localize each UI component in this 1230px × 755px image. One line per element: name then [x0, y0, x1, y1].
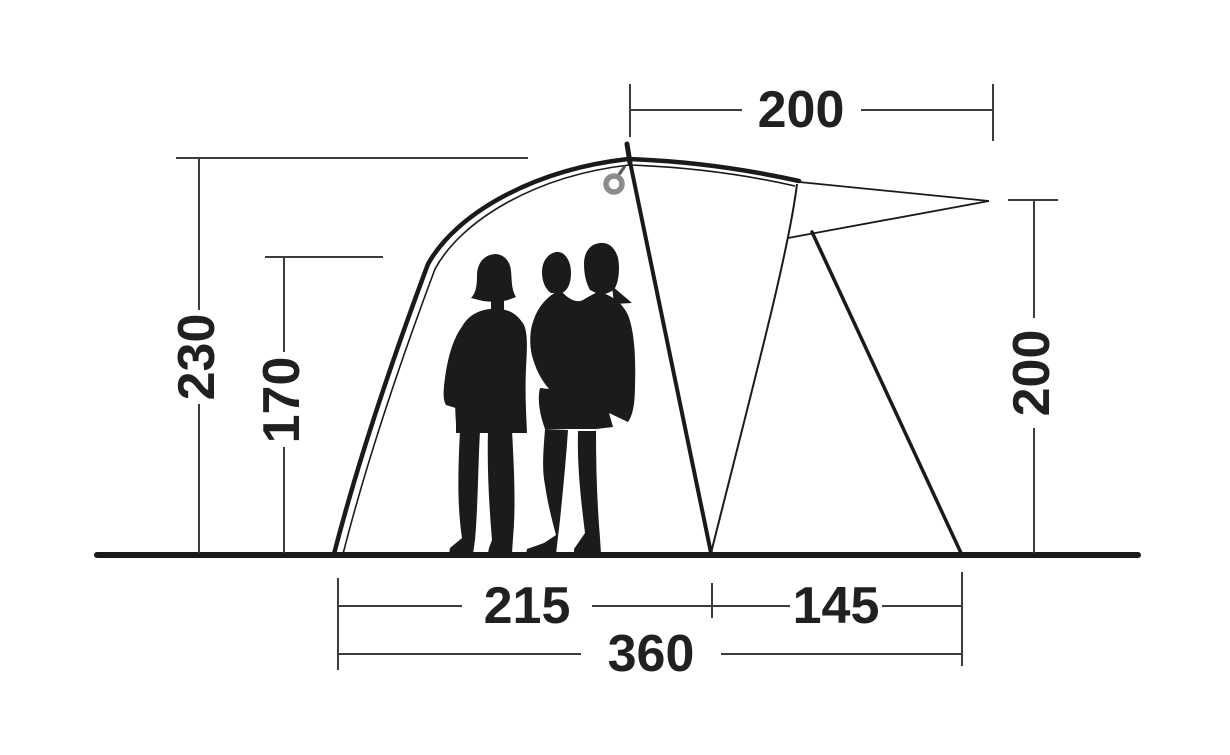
dimension-top-width: 200 — [630, 81, 993, 141]
dim-label-floor-porch: 145 — [793, 577, 880, 635]
dim-label-standing-height: 170 — [253, 357, 311, 444]
figure-man-and-child-body — [530, 290, 635, 429]
rear-wall — [711, 184, 797, 553]
dimension-floor: 215 145 360 — [338, 572, 962, 683]
dim-label-floor-front: 215 — [484, 577, 571, 635]
tent-dimension-diagram: 200 230 170 200 215 145 360 — [0, 0, 1230, 755]
dimension-canopy-height: 200 — [1003, 200, 1061, 553]
ring-cord — [618, 166, 625, 176]
dim-label-canopy-height: 200 — [1003, 330, 1061, 417]
figure-child-head — [542, 252, 571, 293]
canopy-lower-edge — [788, 201, 989, 238]
dim-label-left-height: 230 — [168, 314, 226, 401]
guy-ring-icon — [606, 176, 622, 192]
figure-woman-leg-right — [488, 430, 515, 553]
figure-woman-neck — [491, 295, 504, 311]
figure-man-leg-left — [526, 429, 568, 554]
tent-roof-outer — [628, 159, 799, 181]
canopy-upper-edge — [799, 182, 989, 201]
dimension-standing-height: 170 — [253, 257, 383, 553]
figure-man-leg-right — [574, 431, 601, 554]
dim-label-top-width: 200 — [758, 81, 845, 139]
figure-woman-torso — [455, 309, 527, 433]
guy-pole — [812, 232, 961, 553]
figure-woman-head — [471, 254, 516, 302]
family-silhouette — [444, 243, 636, 554]
figure-woman-leg-left — [449, 430, 480, 554]
dim-label-floor-total: 360 — [608, 625, 695, 683]
figure-man-head — [584, 243, 619, 294]
center-pole — [629, 157, 711, 553]
